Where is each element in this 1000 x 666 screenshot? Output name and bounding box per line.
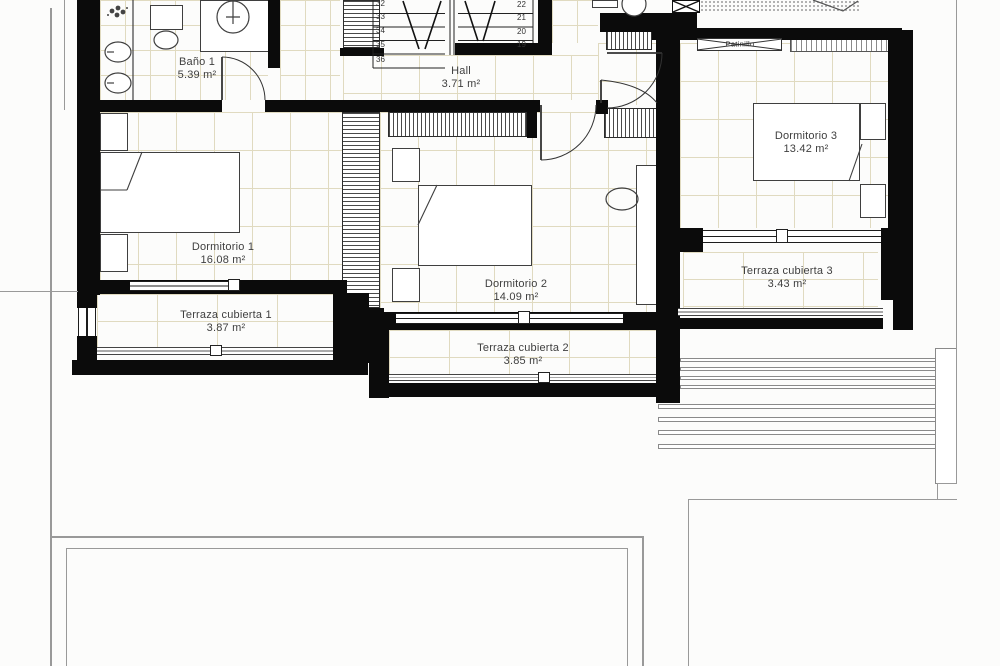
pergola-slat bbox=[680, 376, 936, 380]
window-dorm2 bbox=[396, 313, 623, 324]
nightstand-dormitorio3-bottom bbox=[860, 184, 886, 218]
wardrobe-dormitorio2 bbox=[388, 112, 527, 137]
path-edge-top bbox=[688, 499, 957, 500]
stair-number: 33 bbox=[376, 12, 385, 22]
pergola-slat bbox=[658, 404, 937, 409]
pool-inner-top bbox=[66, 548, 628, 549]
pergola-slat bbox=[658, 444, 937, 449]
pergola-slat bbox=[658, 417, 937, 422]
stair-number: 35 bbox=[376, 40, 385, 50]
closet-left-of-stairs bbox=[343, 0, 380, 48]
room-area: 3.87 m² bbox=[180, 322, 272, 335]
pergola-side-beam bbox=[935, 348, 957, 484]
nightstand-dormitorio3-top bbox=[860, 103, 886, 140]
path-notch-left bbox=[937, 483, 938, 500]
room-name: Terraza cubierta 2 bbox=[477, 342, 569, 355]
pier-terraza3-right bbox=[881, 228, 913, 300]
wc-fixture bbox=[592, 0, 618, 8]
floor-corridor bbox=[598, 43, 656, 105]
stair-number: 32 bbox=[376, 0, 385, 9]
room-label-terraza1: Terraza cubierta 1 3.87 m² bbox=[180, 309, 272, 335]
room-name: Terraza cubierta 1 bbox=[180, 309, 272, 322]
railing-terraza2-post bbox=[538, 372, 550, 383]
floor-plan-canvas: Baño 1 5.39 m² Hall 3.71 m² Dormitorio 1… bbox=[0, 0, 1000, 666]
band-terraza3 bbox=[678, 318, 883, 329]
toilet-tank bbox=[150, 5, 183, 30]
nightstand-dormitorio2-top bbox=[392, 148, 420, 182]
pergola-slat bbox=[680, 358, 936, 362]
site-boundary-tick bbox=[0, 291, 78, 292]
room-area: 5.39 m² bbox=[178, 69, 217, 82]
wall-stair-bottom bbox=[455, 43, 552, 55]
room-label-bano1: Baño 1 5.39 m² bbox=[178, 56, 217, 82]
room-name: Dormitorio 3 bbox=[775, 130, 837, 143]
room-area: 3.43 m² bbox=[741, 278, 833, 291]
room-name: Hall bbox=[442, 65, 481, 78]
room-label-dormitorio1: Dormitorio 1 16.08 m² bbox=[192, 241, 254, 267]
pier-terraza1-left-bottom bbox=[77, 336, 97, 362]
shaft-text: Patinillo bbox=[726, 40, 755, 49]
patinillo-label: Patinillo bbox=[726, 40, 755, 49]
room-area: 13.42 m² bbox=[775, 143, 837, 156]
pergola-slat bbox=[680, 367, 936, 371]
pergola-slat bbox=[658, 430, 937, 435]
stair-number: 36 bbox=[376, 55, 385, 65]
pool-outer-top bbox=[50, 536, 643, 538]
wall-hall-top bbox=[265, 100, 540, 112]
stair-number: 34 bbox=[376, 26, 385, 36]
room-area: 14.09 m² bbox=[485, 291, 547, 304]
desk-dormitorio2 bbox=[636, 165, 658, 305]
pier-terraza3-right-low bbox=[893, 300, 913, 330]
stair-number: 19 bbox=[517, 40, 526, 50]
room-area: 3.85 m² bbox=[477, 355, 569, 368]
window-dorm1-post bbox=[228, 279, 240, 291]
site-boundary-right bbox=[956, 0, 957, 484]
room-area: 3.71 m² bbox=[442, 78, 481, 91]
room-name: Terraza cubierta 3 bbox=[741, 265, 833, 278]
nightstand-dormitorio1-bottom bbox=[100, 234, 128, 272]
wall-left-outer bbox=[77, 0, 100, 295]
wardrobe-dormitorio1 bbox=[342, 112, 380, 308]
stair-number: 20 bbox=[517, 27, 526, 37]
path-edge-left bbox=[688, 499, 689, 666]
nightstand-dormitorio1-top bbox=[100, 113, 128, 151]
room-name: Dormitorio 2 bbox=[485, 278, 547, 291]
band-terraza2 bbox=[380, 383, 670, 397]
stair-direction-lines bbox=[403, 1, 495, 49]
room-label-hall: Hall 3.71 m² bbox=[442, 65, 481, 91]
pool-inner-left bbox=[66, 548, 67, 666]
room-label-terraza3: Terraza cubierta 3 3.43 m² bbox=[741, 265, 833, 291]
path-notch-top bbox=[937, 483, 957, 484]
pool-inner-right bbox=[627, 548, 628, 666]
window-dorm1 bbox=[130, 281, 237, 291]
roof-stipple-strip bbox=[700, 0, 860, 13]
stair-number: 22 bbox=[517, 0, 526, 10]
room-area: 16.08 m² bbox=[192, 254, 254, 267]
pool-outer-right bbox=[642, 536, 644, 666]
room-name: Baño 1 bbox=[178, 56, 217, 69]
room-label-terraza2: Terraza cubierta 2 3.85 m² bbox=[477, 342, 569, 368]
room-name: Dormitorio 1 bbox=[192, 241, 254, 254]
railing-terraza1-post bbox=[210, 345, 222, 356]
chimney-box bbox=[672, 0, 700, 13]
nightstand-dormitorio2-bottom bbox=[392, 268, 420, 302]
railing-terraza2 bbox=[389, 374, 656, 381]
wall-stub-door-dorm2 bbox=[596, 100, 608, 114]
room-label-dormitorio3: Dormitorio 3 13.42 m² bbox=[775, 130, 837, 156]
bed-dormitorio1 bbox=[100, 152, 240, 233]
window-dorm3-post bbox=[776, 229, 788, 243]
room-label-dormitorio2: Dormitorio 2 14.09 m² bbox=[485, 278, 547, 304]
stair-number: 21 bbox=[517, 13, 526, 23]
window-dorm2-post bbox=[518, 311, 530, 324]
plot-edge-top-left bbox=[64, 0, 65, 110]
wall-bath-right bbox=[268, 0, 280, 68]
bed-dormitorio2 bbox=[418, 185, 532, 266]
railing-terraza3 bbox=[678, 308, 883, 316]
floor-vestibule bbox=[280, 0, 340, 100]
band-terraza1 bbox=[72, 360, 368, 375]
shower-tray bbox=[200, 0, 270, 52]
pergola-slat bbox=[680, 385, 936, 389]
wall-spine-right bbox=[656, 40, 680, 403]
site-boundary-left bbox=[50, 8, 52, 666]
wall-bath-bottom-left bbox=[77, 100, 222, 112]
wall-dorm3-right bbox=[888, 30, 913, 255]
wall-dorm3-bottom-left bbox=[658, 228, 703, 252]
window-dorm3 bbox=[703, 230, 881, 243]
wall-stub-wardrobe2 bbox=[527, 112, 537, 138]
pier-terraza1-left-top bbox=[77, 293, 97, 308]
window-terraza1-side bbox=[78, 308, 96, 336]
